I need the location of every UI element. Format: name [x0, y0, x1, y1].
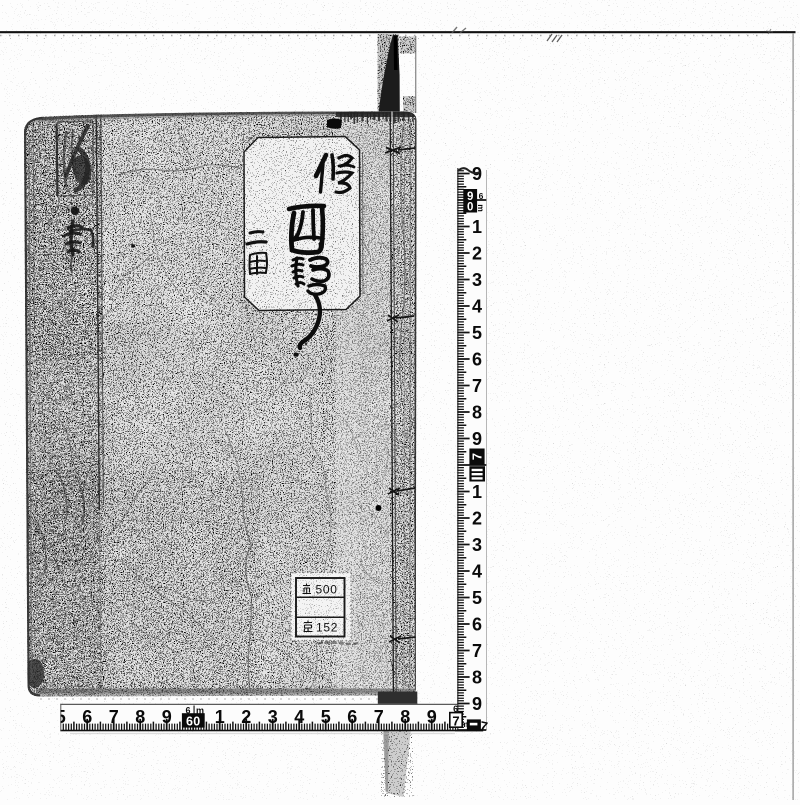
- svg-text:1: 1: [472, 217, 482, 237]
- svg-text:5: 5: [472, 588, 482, 608]
- svg-text:4: 4: [472, 562, 482, 582]
- svg-text:9: 9: [472, 694, 482, 714]
- svg-text:7: 7: [472, 641, 482, 661]
- svg-text:5: 5: [472, 323, 482, 343]
- svg-text:0: 0: [467, 202, 473, 214]
- svg-text:7: 7: [374, 707, 384, 727]
- svg-text:9: 9: [427, 707, 437, 727]
- svg-text:9: 9: [162, 707, 172, 727]
- svg-text:7: 7: [470, 453, 485, 460]
- svg-text:9: 9: [472, 429, 482, 449]
- svg-text:152: 152: [316, 620, 338, 634]
- svg-text:6: 6: [479, 191, 484, 201]
- svg-text:7: 7: [472, 376, 482, 396]
- svg-text:6: 6: [82, 707, 92, 727]
- svg-text:60: 60: [186, 714, 201, 728]
- svg-text:8: 8: [135, 707, 145, 727]
- svg-text:8: 8: [400, 707, 410, 727]
- svg-text:5: 5: [321, 707, 331, 727]
- svg-text:2: 2: [241, 707, 251, 727]
- svg-text:8: 8: [472, 403, 482, 423]
- svg-text:6: 6: [185, 706, 190, 716]
- svg-text:6: 6: [472, 615, 482, 635]
- svg-text:3: 3: [268, 707, 278, 727]
- svg-text:7: 7: [452, 713, 459, 728]
- svg-text:6: 6: [347, 707, 357, 727]
- svg-text:2: 2: [472, 509, 482, 529]
- svg-text:3: 3: [472, 270, 482, 290]
- svg-text:1: 1: [215, 707, 225, 727]
- svg-text:1: 1: [472, 482, 482, 502]
- svg-text:3: 3: [472, 535, 482, 555]
- svg-text:m: m: [196, 706, 204, 716]
- svg-text:7: 7: [109, 707, 119, 727]
- svg-text:4: 4: [472, 297, 482, 317]
- svg-text:2: 2: [472, 244, 482, 264]
- svg-text:m: m: [476, 204, 486, 212]
- svg-text:4: 4: [294, 707, 304, 727]
- svg-text:8: 8: [472, 668, 482, 688]
- svg-text:6: 6: [472, 350, 482, 370]
- svg-text:500: 500: [316, 582, 338, 596]
